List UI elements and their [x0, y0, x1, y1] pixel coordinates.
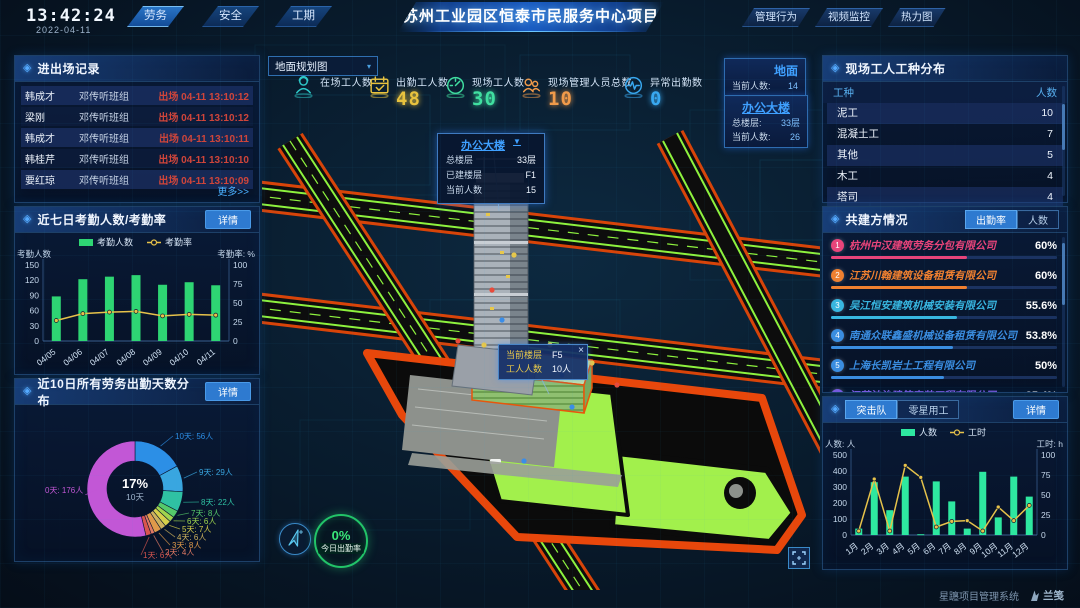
trade-title: 现场工人工种分布 [845, 60, 1059, 77]
trade-row: 木工4 [827, 166, 1063, 187]
kv-row: 工人人数10人 [506, 362, 580, 376]
trade-panel: ◈ 现场工人工种分布 工种 人数 泥工10混凝土工7其他5木工4塔司4 [822, 55, 1068, 203]
partner-bar-fill [831, 286, 967, 289]
more-link[interactable]: 更多>> [217, 183, 249, 198]
work-group: 邓传听班组 [79, 88, 158, 103]
partner-line: 3吴江恒安建筑机械安装有限公司55.6% [831, 298, 1057, 313]
partner-line: 4南通众联鑫盛机械设备租赁有限公司53.8% [831, 328, 1057, 343]
partner-bar [831, 286, 1057, 289]
kv-row: 总楼层33层 [446, 153, 536, 168]
svg-text:25: 25 [1041, 510, 1051, 520]
partner-row: 1杭州中汉建筑劳务分包有限公司60% [823, 235, 1067, 265]
stat-text: 现场管理人员总数10 [548, 74, 632, 109]
partner-line: 2江苏川翰建筑设备租赁有限公司60% [831, 268, 1057, 283]
svg-text:工时: 工时 [968, 427, 986, 438]
footer-logo-text: 兰笺 [1043, 588, 1064, 603]
stat-text: 现场工人数30 [472, 74, 525, 109]
stat-现场管理人员总数: 现场管理人员总数10 [520, 74, 632, 109]
date: 2022-04-11 [36, 25, 91, 35]
partners-title: 共建方情况 [845, 211, 959, 228]
svg-text:考勤人数: 考勤人数 [97, 237, 133, 248]
partner-name: 江苏法治建筑安装工程有限公司 [849, 388, 1021, 393]
building-popup[interactable]: 办公大楼 ▼ 总楼层33层已建楼层F1当前人数15 [437, 133, 545, 204]
svg-text:120: 120 [25, 275, 39, 285]
tab-管理行为[interactable]: 管理行为 [742, 8, 810, 27]
svg-text:考勤人数: 考勤人数 [17, 249, 52, 259]
partners-list: 1杭州中汉建筑劳务分包有限公司60%2江苏川翰建筑设备租赁有限公司60%3吴江恒… [823, 233, 1067, 393]
kv-value: 26 [790, 130, 800, 144]
partner-value: 55.6% [1026, 300, 1057, 312]
kv-value: F1 [525, 168, 536, 183]
kv-row: 当前楼层F5 [506, 348, 580, 362]
worker-icon [292, 74, 315, 98]
svg-text:04/05: 04/05 [35, 347, 58, 368]
partner-bar-fill [831, 256, 967, 259]
diamond-icon: ◈ [831, 404, 839, 415]
building-popup-title[interactable]: 办公大楼 [461, 137, 505, 153]
svg-text:8天: 22人: 8天: 22人 [201, 498, 235, 507]
stat-value: 48 [396, 89, 449, 109]
work-group: 邓传听班组 [79, 172, 158, 187]
partner-row: 6江苏法治建筑安装工程有限公司35.4% [823, 385, 1067, 393]
rank-badge: 3 [831, 299, 844, 312]
entry-exit-row: 韩成才邓传听班组出场 04-11 13:10:11 [21, 128, 253, 147]
worker-name: 梁刚 [25, 109, 79, 124]
kv-value: 15 [526, 183, 536, 198]
partner-line: 6江苏法治建筑安装工程有限公司35.4% [831, 388, 1057, 393]
svg-text:75: 75 [233, 279, 243, 289]
partner-name: 杭州中汉建筑劳务分包有限公司 [849, 238, 1030, 253]
stat-value: 30 [472, 89, 525, 109]
svg-text:0天: 176人: 0天: 176人 [45, 486, 83, 495]
worker-name: 韩成才 [25, 88, 79, 103]
layer-select[interactable]: 地面规划图 ▾ [268, 56, 378, 76]
scrollbar[interactable] [1062, 86, 1065, 196]
work-group: 邓传听班组 [79, 151, 158, 166]
svg-text:400: 400 [833, 466, 847, 476]
stat-出勤工人数: 出勤工人数48 [368, 74, 449, 109]
svg-text:10天: 56人: 10天: 56人 [175, 432, 213, 441]
work-group: 邓传听班组 [79, 130, 159, 145]
svg-text:300: 300 [833, 482, 847, 492]
partner-bar [831, 316, 1057, 319]
stat-label: 异常出勤数 [650, 74, 703, 89]
stat-text: 出勤工人数48 [396, 74, 449, 109]
svg-text:0: 0 [842, 530, 847, 540]
partner-value: 35.4% [1026, 390, 1057, 394]
kv-label: 已建楼层 [446, 168, 482, 183]
svg-text:30: 30 [30, 321, 40, 331]
stat-value: 0 [650, 89, 703, 109]
partner-bar [831, 346, 1057, 349]
partners-toggle: 出勤率人数 [965, 210, 1059, 229]
tab-视频监控[interactable]: 视频监控 [815, 8, 883, 27]
exit-event: 出场 04-11 13:10:10 [158, 151, 249, 166]
today-attendance-badge: 0% 今日出勤率 [314, 514, 368, 568]
kv-row: 当前人数15 [446, 183, 536, 198]
worker-name: 韩成才 [25, 130, 79, 145]
svg-text:04/09: 04/09 [141, 347, 164, 368]
floor-tooltip-rows: 当前楼层F5工人人数10人 [506, 348, 580, 376]
stat-value: 10 [548, 89, 632, 109]
svg-text:7月: 7月 [936, 541, 953, 557]
exit-event: 出场 04-11 13:10:11 [159, 130, 249, 145]
stat-现场工人数: 现场工人数30 [444, 74, 525, 109]
partner-name: 南通众联鑫盛机械设备租赁有限公司 [849, 328, 1021, 343]
squad-panel: ◈ 突击队零星用工 详情 人数工时人数: 人工时: h0100200300400… [822, 396, 1068, 570]
svg-text:6月: 6月 [921, 541, 938, 557]
diamond-icon: ◈ [831, 214, 839, 225]
people-icon [520, 74, 543, 98]
scrollbar[interactable] [1062, 237, 1065, 387]
partner-line: 1杭州中汉建筑劳务分包有限公司60% [831, 238, 1057, 253]
stat-label: 在场工人数 [320, 74, 373, 89]
kv-value: 33层 [781, 116, 800, 130]
svg-text:考勤率: %: 考勤率: % [217, 249, 255, 259]
partner-name: 上海长凯岩土工程有限公司 [849, 358, 1030, 373]
calendar-check-icon [368, 74, 391, 98]
stat-text: 异常出勤数0 [650, 74, 703, 109]
partner-row: 4南通众联鑫盛机械设备租赁有限公司53.8% [823, 325, 1067, 355]
dashboard-root: 13:42:24 2022-04-11 劳务安全工期 苏州工业园区恒泰市民服务中… [0, 0, 1080, 608]
kv-value: 10人 [552, 362, 571, 376]
trade-table-header: 工种 人数 [823, 82, 1067, 103]
partner-value: 60% [1035, 240, 1057, 252]
building-popup-rows: 总楼层33层已建楼层F1当前人数15 [446, 153, 536, 198]
trade-row: 其他5 [827, 145, 1063, 166]
partner-name: 江苏川翰建筑设备租赁有限公司 [849, 268, 1030, 283]
kv-label: 总楼层 [446, 153, 473, 168]
svg-text:75: 75 [1041, 470, 1051, 480]
partner-row: 3吴江恒安建筑机械安装有限公司55.6% [823, 295, 1067, 325]
svg-text:2月: 2月 [859, 541, 876, 557]
svg-text:04/06: 04/06 [61, 347, 84, 368]
days-distribution-panel: ◈ 近10日所有劳务出勤天数分布 详情 10天: 56人9天: 29人8天: 2… [14, 378, 260, 562]
svg-text:0: 0 [1041, 530, 1046, 540]
squad-tab-零星用工[interactable]: 零星用工 [897, 400, 959, 419]
layer-select-value: 地面规划图 [275, 59, 328, 74]
svg-text:100: 100 [833, 514, 847, 524]
partner-value: 50% [1035, 360, 1057, 372]
svg-text:17%: 17% [122, 476, 148, 491]
close-icon[interactable]: × [578, 345, 584, 356]
partner-name: 吴江恒安建筑机械安装有限公司 [849, 298, 1021, 313]
attendance-7d-title: 近七日考勤人数/考勤率 [37, 211, 199, 228]
svg-text:5月: 5月 [905, 541, 922, 557]
detail-button[interactable]: 详情 [1013, 400, 1059, 419]
trade-type: 塔司 [837, 187, 858, 208]
svg-text:0: 0 [34, 336, 39, 346]
kv-row: 当前人数:26 [732, 130, 800, 144]
partners-tab-出勤率[interactable]: 出勤率 [965, 210, 1017, 229]
kv-label: 当前楼层 [506, 348, 542, 362]
kv-row: 总楼层:33层 [732, 116, 800, 130]
kv-row: 已建楼层F1 [446, 168, 536, 183]
trade-count: 4 [1047, 166, 1053, 187]
diamond-icon: ◈ [23, 386, 31, 397]
attendance-rate-value: 0% [332, 528, 351, 543]
svg-text:0: 0 [233, 336, 238, 346]
svg-text:04/10: 04/10 [167, 347, 190, 368]
entry-exit-list: 韩成才邓传听班组出场 04-11 13:10:12梁刚邓传听班组出场 04-11… [15, 82, 259, 189]
partner-line: 5上海长凯岩土工程有限公司50% [831, 358, 1057, 373]
svg-text:人数: 人数 [919, 427, 937, 438]
partners-tab-人数[interactable]: 人数 [1017, 210, 1059, 229]
svg-text:100: 100 [1041, 450, 1055, 460]
page-title: 苏州工业园区恒泰市民服务中心项目 [398, 2, 664, 32]
partner-bar-fill [831, 316, 957, 319]
svg-text:100: 100 [233, 260, 247, 270]
svg-text:90: 90 [30, 290, 40, 300]
svg-text:04/08: 04/08 [114, 347, 137, 368]
partner-row: 2江苏川翰建筑设备租赁有限公司60% [823, 265, 1067, 295]
rank-badge: 4 [831, 329, 844, 342]
trade-type: 木工 [837, 166, 858, 187]
svg-text:12月: 12月 [1010, 541, 1030, 560]
tower-card-rows: 总楼层:33层当前人数:26 [732, 116, 800, 144]
entry-exit-row: 韩桂芹邓传听班组出场 04-11 13:10:10 [21, 149, 253, 168]
partner-bar [831, 256, 1057, 259]
pulse-icon [622, 74, 645, 98]
svg-text:50: 50 [233, 298, 243, 308]
days-distribution-chart: 10天: 56人9天: 29人8天: 22人7天: 8人6天: 6人5天: 7人… [15, 405, 257, 559]
svg-text:工时: h: 工时: h [1037, 439, 1064, 449]
exit-event: 出场 04-11 13:10:12 [158, 109, 249, 124]
svg-text:1天: 6人: 1天: 6人 [143, 551, 172, 559]
diamond-icon: ◈ [23, 63, 31, 74]
svg-text:25: 25 [233, 317, 243, 327]
worker-name: 韩桂芹 [25, 151, 79, 166]
svg-text:500: 500 [833, 450, 847, 460]
stat-label: 出勤工人数 [396, 74, 449, 89]
caret-down-icon[interactable]: ▼ [513, 137, 521, 153]
kv-label: 工人人数 [506, 362, 542, 376]
svg-text:10天: 10天 [126, 492, 144, 502]
trade-count: 7 [1047, 124, 1053, 145]
svg-text:考勤率: 考勤率 [165, 237, 192, 248]
detail-button[interactable]: 详情 [205, 382, 251, 401]
svg-text:人数: 人: 人数: 人 [825, 439, 856, 449]
partner-value: 53.8% [1026, 330, 1057, 342]
rank-badge: 6 [831, 389, 844, 393]
kv-label: 当前人数: [732, 130, 771, 144]
trade-table: 泥工10混凝土工7其他5木工4塔司4 [823, 103, 1067, 208]
svg-text:4月: 4月 [890, 541, 907, 557]
stat-text: 在场工人数 [320, 74, 373, 89]
svg-text:3月: 3月 [874, 541, 891, 557]
trade-row: 塔司4 [827, 187, 1063, 208]
footer-brand: 星躔项目管理系统 [939, 588, 1019, 603]
squad-tabs: 突击队零星用工 [845, 400, 1007, 419]
floor-tooltip: × 当前楼层F5工人人数10人 [498, 344, 588, 380]
partner-bar-fill [831, 346, 953, 349]
tower-card[interactable]: 办公大楼 总楼层:33层当前人数:26 [724, 95, 808, 148]
trade-col-type: 工种 [833, 85, 854, 100]
kv-label: 当前人数: [732, 79, 771, 93]
kv-value: F5 [552, 348, 563, 362]
attendance-7d-chart: 考勤人数考勤率考勤人数考勤率: %03060901201500255075100… [15, 233, 257, 371]
work-group: 邓传听班组 [79, 109, 158, 124]
svg-text:150: 150 [25, 260, 39, 270]
stat-在场工人数: 在场工人数 [292, 74, 373, 98]
partner-value: 60% [1035, 270, 1057, 282]
detail-button[interactable]: 详情 [205, 210, 251, 229]
entry-exit-panel: ◈ 进出场记录 韩成才邓传听班组出场 04-11 13:10:12梁刚邓传听班组… [14, 55, 260, 203]
kv-label: 当前人数 [446, 183, 482, 198]
stat-label: 现场管理人员总数 [548, 74, 632, 89]
rank-badge: 5 [831, 359, 844, 372]
svg-text:9天: 29人: 9天: 29人 [199, 468, 233, 477]
svg-text:04/11: 04/11 [195, 347, 218, 368]
trade-type: 泥工 [837, 103, 858, 124]
trade-count: 10 [1041, 103, 1053, 124]
trade-row: 混凝土工7 [827, 124, 1063, 145]
kv-value: 33层 [517, 153, 536, 168]
svg-text:8月: 8月 [952, 541, 969, 557]
footer-logo: 兰笺 [1029, 588, 1064, 603]
attendance-7d-panel: ◈ 近七日考勤人数/考勤率 详情 考勤人数考勤率考勤人数考勤率: %030609… [14, 206, 260, 375]
rank-badge: 1 [831, 239, 844, 252]
worker-name: 要红琼 [25, 172, 79, 187]
svg-text:50: 50 [1041, 490, 1051, 500]
footer: 星躔项目管理系统 兰笺 [939, 588, 1064, 603]
ground-card-title: 地面 [732, 62, 798, 79]
exit-event: 出场 04-11 13:10:12 [158, 88, 249, 103]
svg-text:60: 60 [30, 306, 40, 316]
partner-bar [831, 376, 1057, 379]
stat-label: 现场工人数 [472, 74, 525, 89]
partners-panel: ◈ 共建方情况 出勤率人数 1杭州中汉建筑劳务分包有限公司60%2江苏川翰建筑设… [822, 206, 1068, 393]
trade-type: 其他 [837, 145, 858, 166]
gauge-icon [444, 74, 467, 98]
trade-count: 5 [1047, 145, 1053, 166]
trade-type: 混凝土工 [837, 124, 879, 145]
trade-col-count: 人数 [1036, 85, 1057, 100]
ground-card-rows: 当前人数:14 [732, 79, 798, 93]
kv-label: 总楼层: [732, 116, 762, 130]
trade-row: 泥工10 [827, 103, 1063, 124]
partner-bar-fill [831, 376, 944, 379]
stat-异常出勤数: 异常出勤数0 [622, 74, 703, 109]
clock: 13:42:24 [26, 6, 116, 26]
trade-count: 4 [1047, 187, 1053, 208]
logo-icon [1029, 589, 1040, 602]
rank-badge: 2 [831, 269, 844, 282]
fullscreen-icon[interactable] [788, 547, 810, 569]
entry-exit-title: 进出场记录 [37, 60, 251, 77]
partner-row: 5上海长凯岩土工程有限公司50% [823, 355, 1067, 385]
svg-text:04/07: 04/07 [88, 347, 111, 368]
compass-icon[interactable] [279, 523, 311, 555]
svg-text:200: 200 [833, 498, 847, 508]
attendance-rate-label: 今日出勤率 [318, 543, 364, 554]
days-distribution-title: 近10日所有劳务出勤天数分布 [37, 375, 199, 409]
entry-exit-row: 梁刚邓传听班组出场 04-11 13:10:12 [21, 107, 253, 126]
tower-card-title: 办公大楼 [732, 99, 800, 116]
squad-tab-突击队[interactable]: 突击队 [845, 400, 897, 419]
ground-card[interactable]: 地面 当前人数:14 [724, 58, 806, 97]
kv-row: 当前人数:14 [732, 79, 798, 93]
diamond-icon: ◈ [23, 214, 31, 225]
diamond-icon: ◈ [831, 63, 839, 74]
entry-exit-row: 韩成才邓传听班组出场 04-11 13:10:12 [21, 86, 253, 105]
squad-chart: 人数工时人数: 人工时: h01002003004005000255075100… [823, 423, 1065, 567]
kv-value: 14 [788, 79, 798, 93]
caret-down-icon: ▾ [367, 62, 371, 71]
svg-text:1月: 1月 [843, 541, 860, 557]
